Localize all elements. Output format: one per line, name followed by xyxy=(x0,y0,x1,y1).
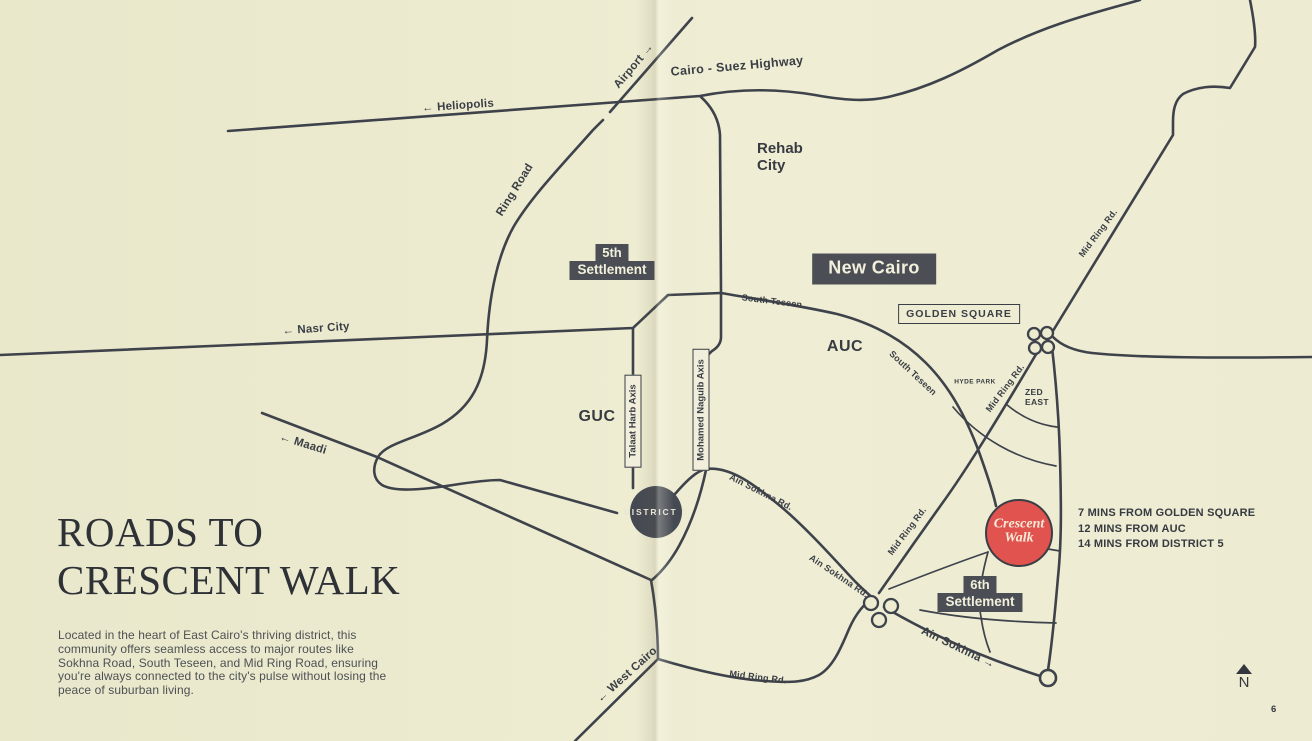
travel-time-item: 12 MINS FROM AUC xyxy=(1078,522,1255,538)
road-cross-connector xyxy=(953,407,1056,466)
north-compass: N xyxy=(1229,664,1259,691)
badge-6th-line2: Settlement xyxy=(937,593,1022,612)
travel-times-list: 7 MINS FROM GOLDEN SQUARE 12 MINS FROM A… xyxy=(1078,506,1255,553)
roundabout-icon xyxy=(1040,670,1056,686)
crescent-walk-logo: Crescent Walk xyxy=(994,518,1045,547)
road-nasr-city xyxy=(0,293,721,355)
page-title: ROADS TO CRESCENT WALK xyxy=(57,508,400,604)
travel-time-item: 7 MINS FROM GOLDEN SQUARE xyxy=(1078,506,1255,522)
road-mid-ring-bottom xyxy=(658,599,872,682)
crescent-walk-logo-line2: Walk xyxy=(994,532,1045,546)
badge-new-cairo: New Cairo xyxy=(812,254,936,285)
badge-5th-settlement: 5th Settlement xyxy=(569,244,654,280)
zed-east-line2: EAST xyxy=(1025,398,1049,408)
badge-golden-square: GOLDEN SQUARE xyxy=(898,304,1020,324)
road-zed-connector xyxy=(1006,404,1057,427)
badge-6th-line1: 6th xyxy=(963,576,997,594)
rehab-city-line1: Rehab xyxy=(757,140,803,157)
area-label-zed-east: ZED EAST xyxy=(1025,388,1049,407)
district5-label: DISTRICT 5 xyxy=(624,507,688,517)
page-title-line2: CRESCENT WALK xyxy=(57,556,400,604)
badge-6th-settlement: 6th Settlement xyxy=(937,576,1022,612)
road-ring-road xyxy=(374,120,617,513)
travel-time-item: 14 MINS FROM DISTRICT 5 xyxy=(1078,537,1255,553)
axis-label-mohamed-naguib: Mohamed Naguib Axis xyxy=(693,349,710,471)
badge-5th-line2: Settlement xyxy=(569,261,654,280)
road-marker-stub xyxy=(1048,549,1060,551)
cloverleaf-interchange-icon xyxy=(1028,327,1054,354)
badge-5th-line1: 5th xyxy=(595,244,629,262)
page-title-line1: ROADS TO xyxy=(57,508,400,556)
north-label: N xyxy=(1239,675,1250,691)
page-number: 6 xyxy=(1271,704,1276,715)
area-label-hyde-park: HYDE PARK xyxy=(954,379,995,386)
north-arrow-icon xyxy=(1236,664,1252,674)
crescent-walk-logo-line1: Crescent xyxy=(994,518,1045,532)
area-label-rehab-city: Rehab City xyxy=(757,140,803,174)
page-description: Located in the heart of East Cairo's thr… xyxy=(58,629,398,698)
rehab-city-line2: City xyxy=(757,157,803,174)
road-wedge-vertical xyxy=(1048,347,1061,670)
axis-label-talaat-harb: Talaat Harb Axis xyxy=(625,374,642,467)
area-label-guc: GUC xyxy=(578,408,615,426)
brochure-page: ← Heliopolis Airport → Cairo - Suez High… xyxy=(0,0,1312,741)
road-east-from-interchange xyxy=(1053,337,1312,358)
road-mid-ring-upper xyxy=(1048,0,1255,339)
road-naguib-axis-upper xyxy=(701,97,721,292)
area-label-auc: AUC xyxy=(827,338,863,356)
road-west-cairo xyxy=(575,659,658,741)
triple-interchange-icon xyxy=(864,596,898,627)
road-south-teseen xyxy=(721,293,996,506)
